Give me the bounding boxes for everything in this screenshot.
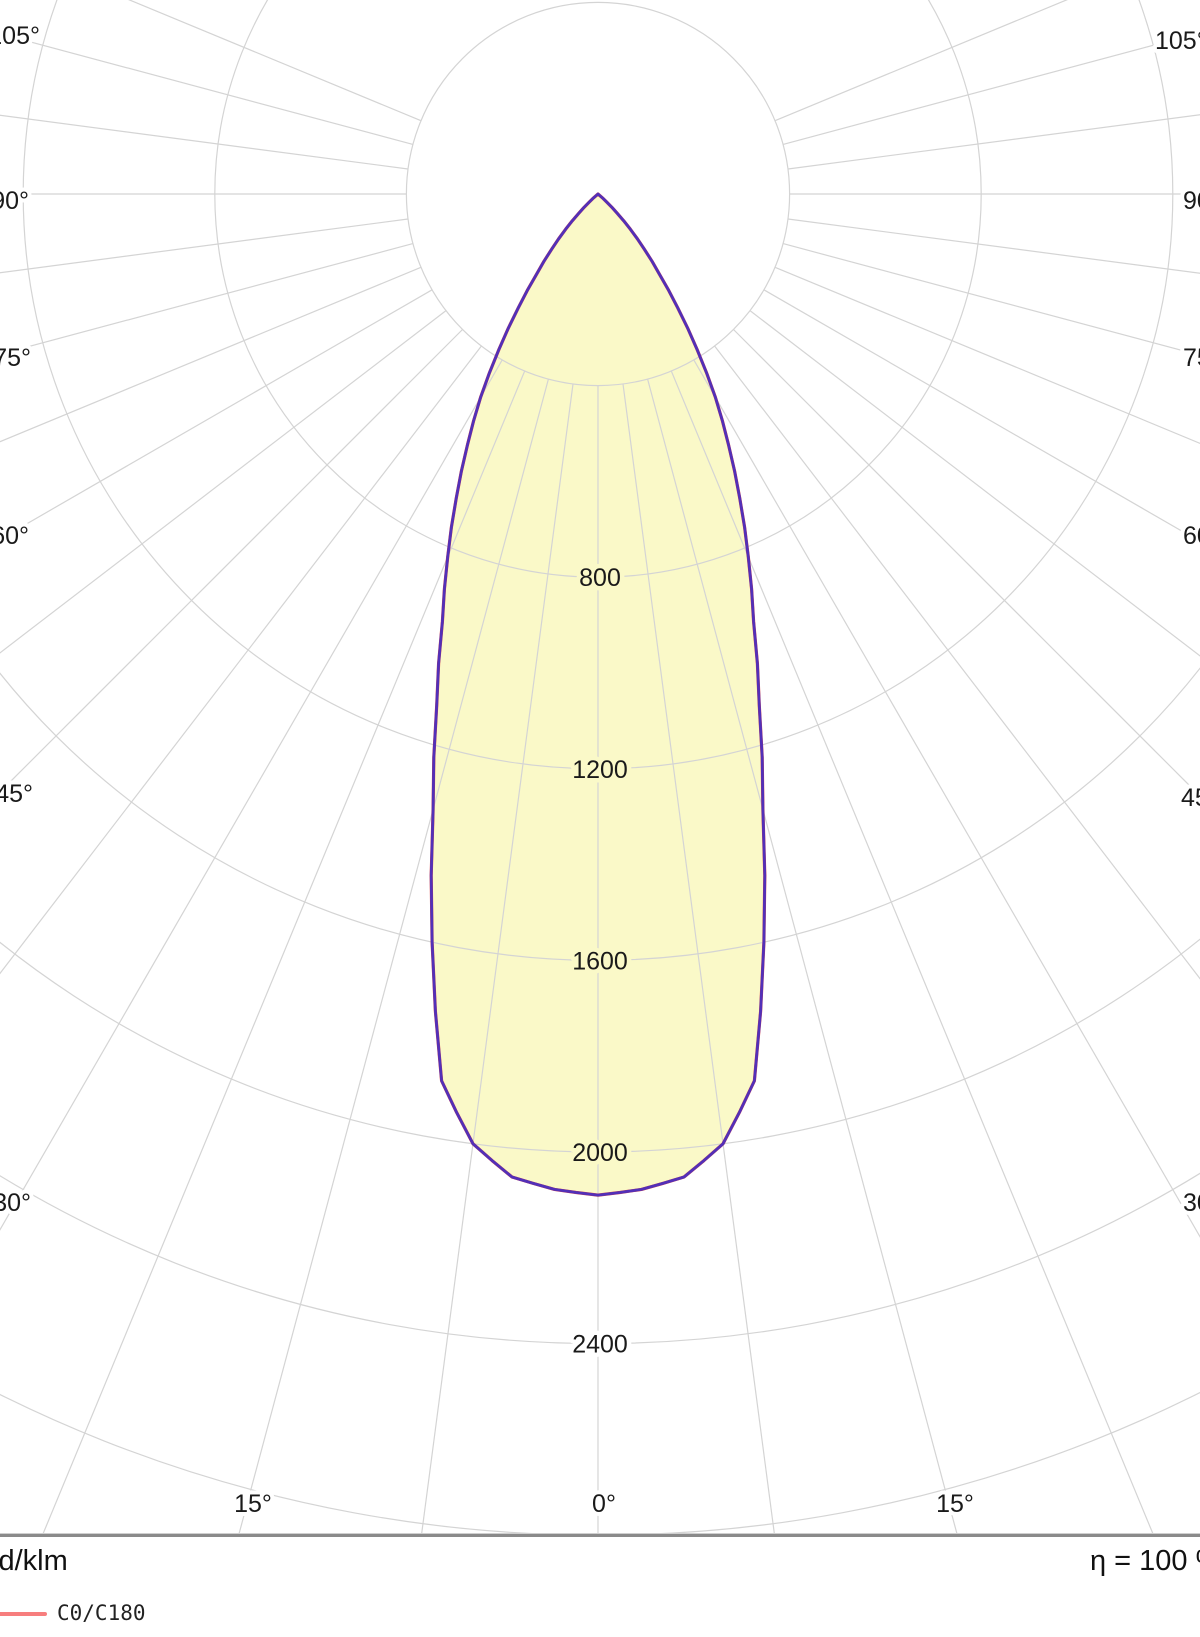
angle-label: 105°	[1155, 27, 1200, 55]
photometric-diagram-page: 8001200160020002400105°90°75°60°45°30°10…	[0, 0, 1200, 1637]
angle-label: 30°	[1183, 1189, 1200, 1217]
angle-label: 105°	[0, 22, 40, 50]
angle-label: 75°	[0, 344, 31, 372]
legend-entry-label: C0/C180	[57, 1601, 146, 1625]
angle-label: 15°	[234, 1490, 272, 1518]
angle-label: 75°	[1183, 344, 1200, 372]
ring-value-label: 2000	[572, 1139, 628, 1167]
angle-label: 30°	[0, 1189, 31, 1217]
light-output-ratio-label: η = 100 %	[1090, 1545, 1200, 1578]
footer-separator	[0, 1534, 1200, 1537]
angle-label: 90°	[1183, 187, 1200, 215]
ring-value-label: 1200	[572, 756, 628, 784]
angle-label: 0°	[592, 1490, 616, 1518]
polar-chart: 8001200160020002400105°90°75°60°45°30°10…	[0, 0, 1200, 1534]
angle-label: 15°	[936, 1490, 974, 1518]
angle-label: 60°	[1183, 522, 1200, 550]
angle-label: 45°	[0, 780, 33, 808]
legend-line-icon	[0, 1612, 47, 1616]
angle-label: 60°	[0, 522, 29, 550]
angle-label: 90°	[0, 187, 29, 215]
unit-label: cd/klm	[0, 1545, 68, 1578]
ring-value-label: 1600	[572, 947, 628, 975]
ring-value-label: 800	[579, 564, 621, 592]
angle-label: 45°	[1181, 784, 1200, 812]
ring-value-label: 2400	[572, 1331, 628, 1359]
